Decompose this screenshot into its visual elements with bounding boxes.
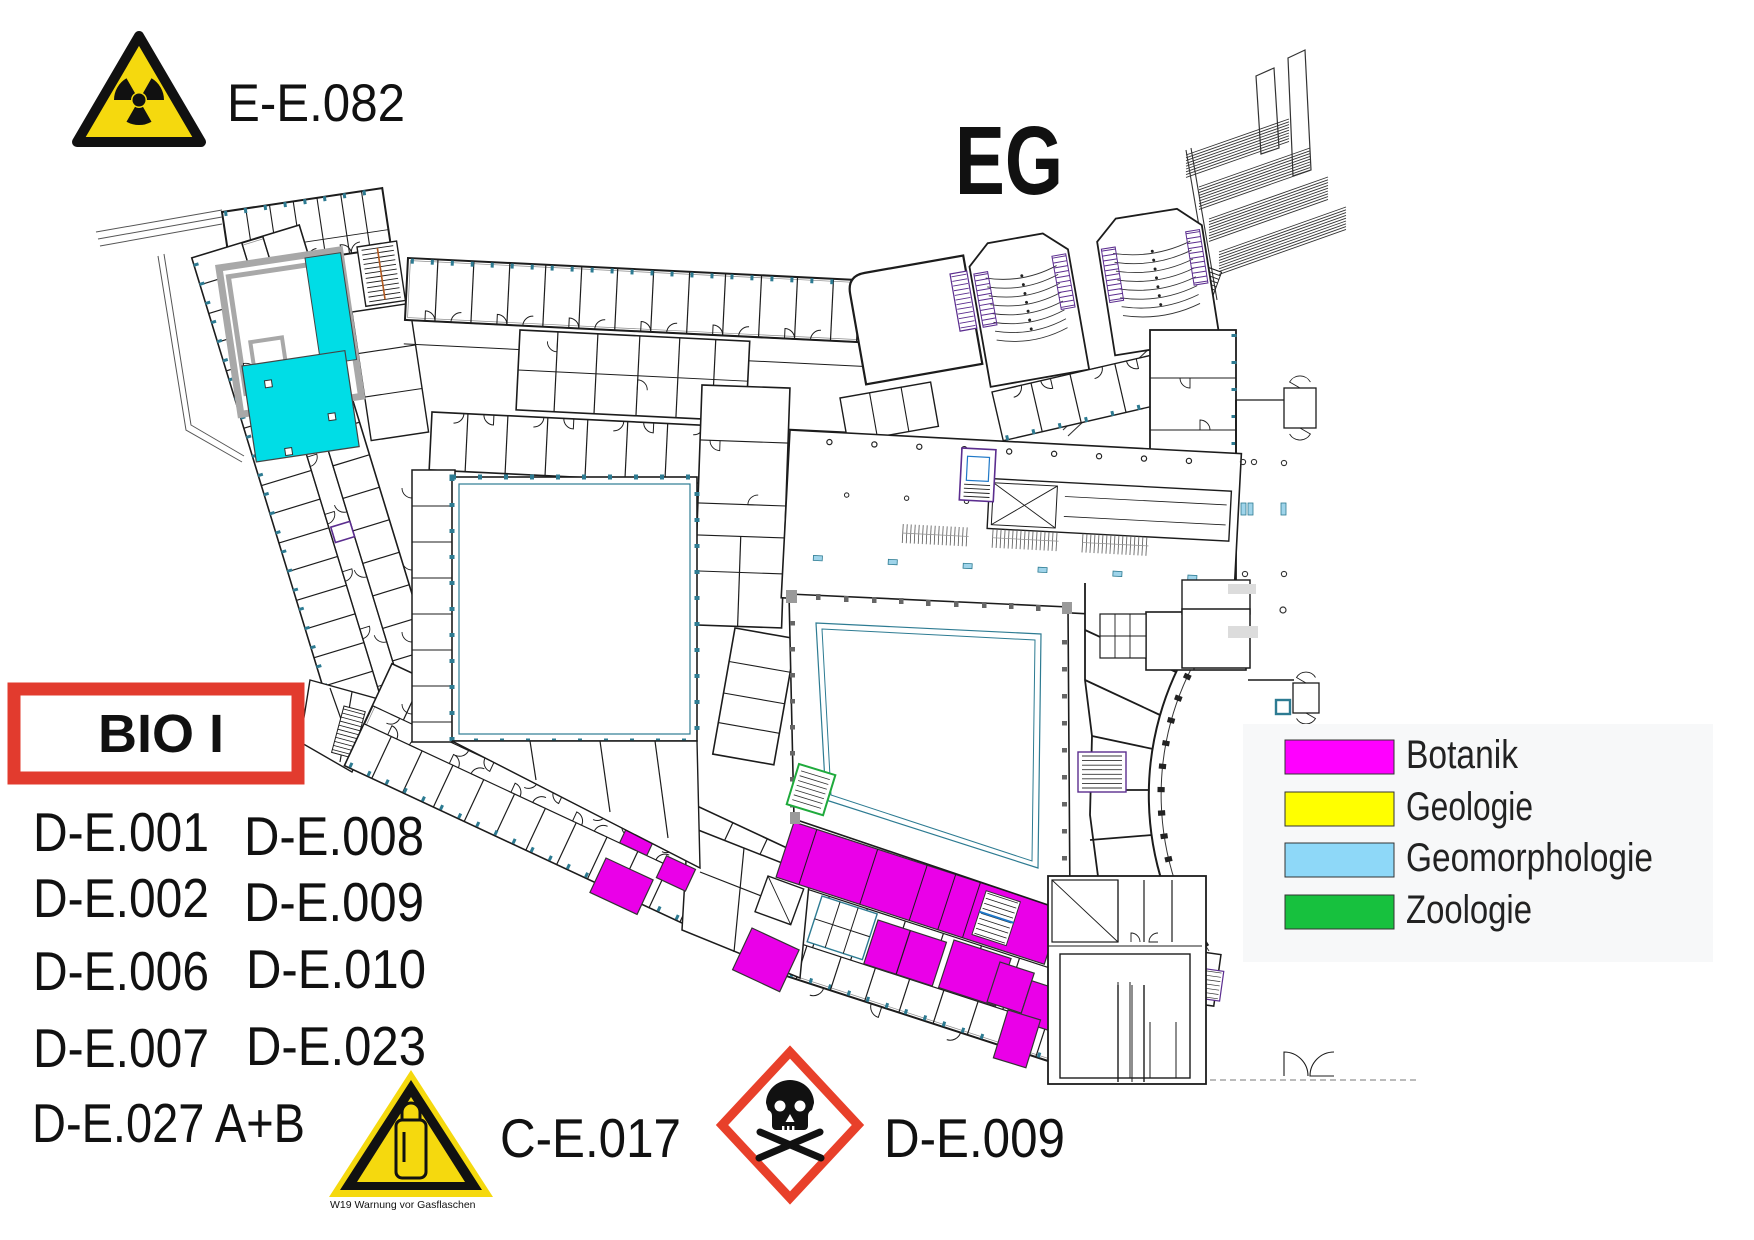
svg-text:Botanik: Botanik — [1406, 733, 1519, 777]
svg-text:D-E.006: D-E.006 — [33, 940, 209, 1002]
svg-text:W19 Warnung vor Gasflaschen: W19 Warnung vor Gasflaschen — [330, 1199, 476, 1211]
svg-text:D-E.001: D-E.001 — [33, 801, 209, 863]
svg-text:D-E.008: D-E.008 — [244, 805, 424, 867]
svg-text:D-E.010: D-E.010 — [246, 938, 426, 1000]
svg-text:EG: EG — [955, 106, 1063, 215]
svg-text:D-E.027 A+B: D-E.027 A+B — [32, 1092, 305, 1154]
svg-text:D-E.009: D-E.009 — [244, 871, 424, 933]
svg-text:BIO I: BIO I — [98, 704, 224, 764]
svg-text:D-E.007: D-E.007 — [33, 1017, 209, 1079]
svg-text:D-E.002: D-E.002 — [33, 867, 209, 929]
svg-text:E-E.082: E-E.082 — [227, 74, 405, 133]
svg-text:Zoologie: Zoologie — [1406, 888, 1532, 932]
svg-text:Geologie: Geologie — [1406, 785, 1533, 829]
svg-text:D-E.023: D-E.023 — [246, 1015, 426, 1077]
svg-text:C-E.017: C-E.017 — [500, 1107, 681, 1169]
svg-text:Geomorphologie: Geomorphologie — [1406, 836, 1653, 880]
svg-text:D-E.009: D-E.009 — [884, 1107, 1065, 1169]
